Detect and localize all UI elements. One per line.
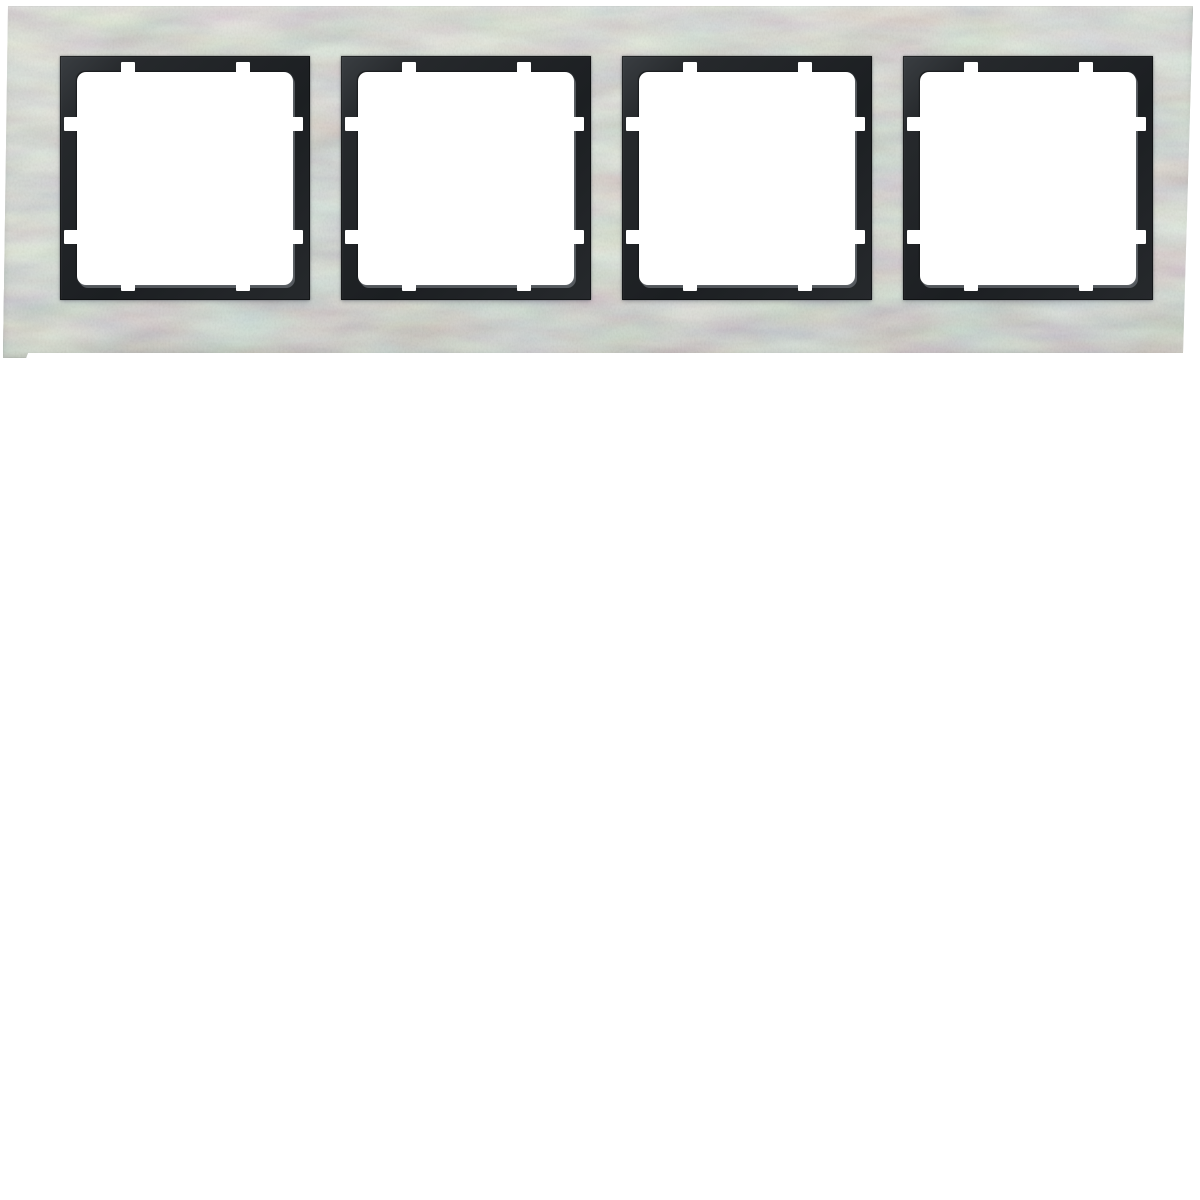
- gang-module-2: [341, 56, 591, 300]
- mounting-notch: [964, 281, 978, 291]
- mounting-notch: [291, 230, 303, 244]
- product-photo-canvas: [0, 0, 1200, 1200]
- mounting-notch: [121, 62, 135, 76]
- mounting-notch: [626, 230, 641, 244]
- mounting-notch: [517, 62, 531, 76]
- mounting-notch: [121, 281, 135, 291]
- mounting-notch: [236, 281, 250, 291]
- mounting-notch: [572, 117, 584, 131]
- cover-plate: [3, 6, 1193, 358]
- mounting-notch: [291, 117, 303, 131]
- mounting-notch: [907, 117, 922, 131]
- mounting-notch: [907, 230, 922, 244]
- mounting-notch: [853, 117, 865, 131]
- gang-module-1: [60, 56, 310, 300]
- mounting-notch: [402, 281, 416, 291]
- mounting-notch: [964, 62, 978, 76]
- mounting-notch: [853, 230, 865, 244]
- mounting-notch: [236, 62, 250, 76]
- mounting-notch: [798, 62, 812, 76]
- gang-opening-2: [358, 72, 574, 285]
- mounting-notch: [1134, 117, 1146, 131]
- mounting-notch: [798, 281, 812, 291]
- mounting-notch: [345, 117, 360, 131]
- mounting-notch: [345, 230, 360, 244]
- gang-opening-3: [639, 72, 855, 285]
- gang-opening-4: [920, 72, 1136, 285]
- mounting-notch: [1134, 230, 1146, 244]
- mounting-notch: [572, 230, 584, 244]
- gang-opening-1: [77, 72, 293, 285]
- mounting-notch: [626, 117, 641, 131]
- mounting-notch: [1079, 281, 1093, 291]
- mounting-notch: [683, 62, 697, 76]
- gang-module-3: [622, 56, 872, 300]
- gang-module-4: [903, 56, 1153, 300]
- mounting-notch: [517, 281, 531, 291]
- mounting-notch: [64, 117, 79, 131]
- mounting-notch: [683, 281, 697, 291]
- mounting-notch: [1079, 62, 1093, 76]
- mounting-notch: [64, 230, 79, 244]
- mounting-notch: [402, 62, 416, 76]
